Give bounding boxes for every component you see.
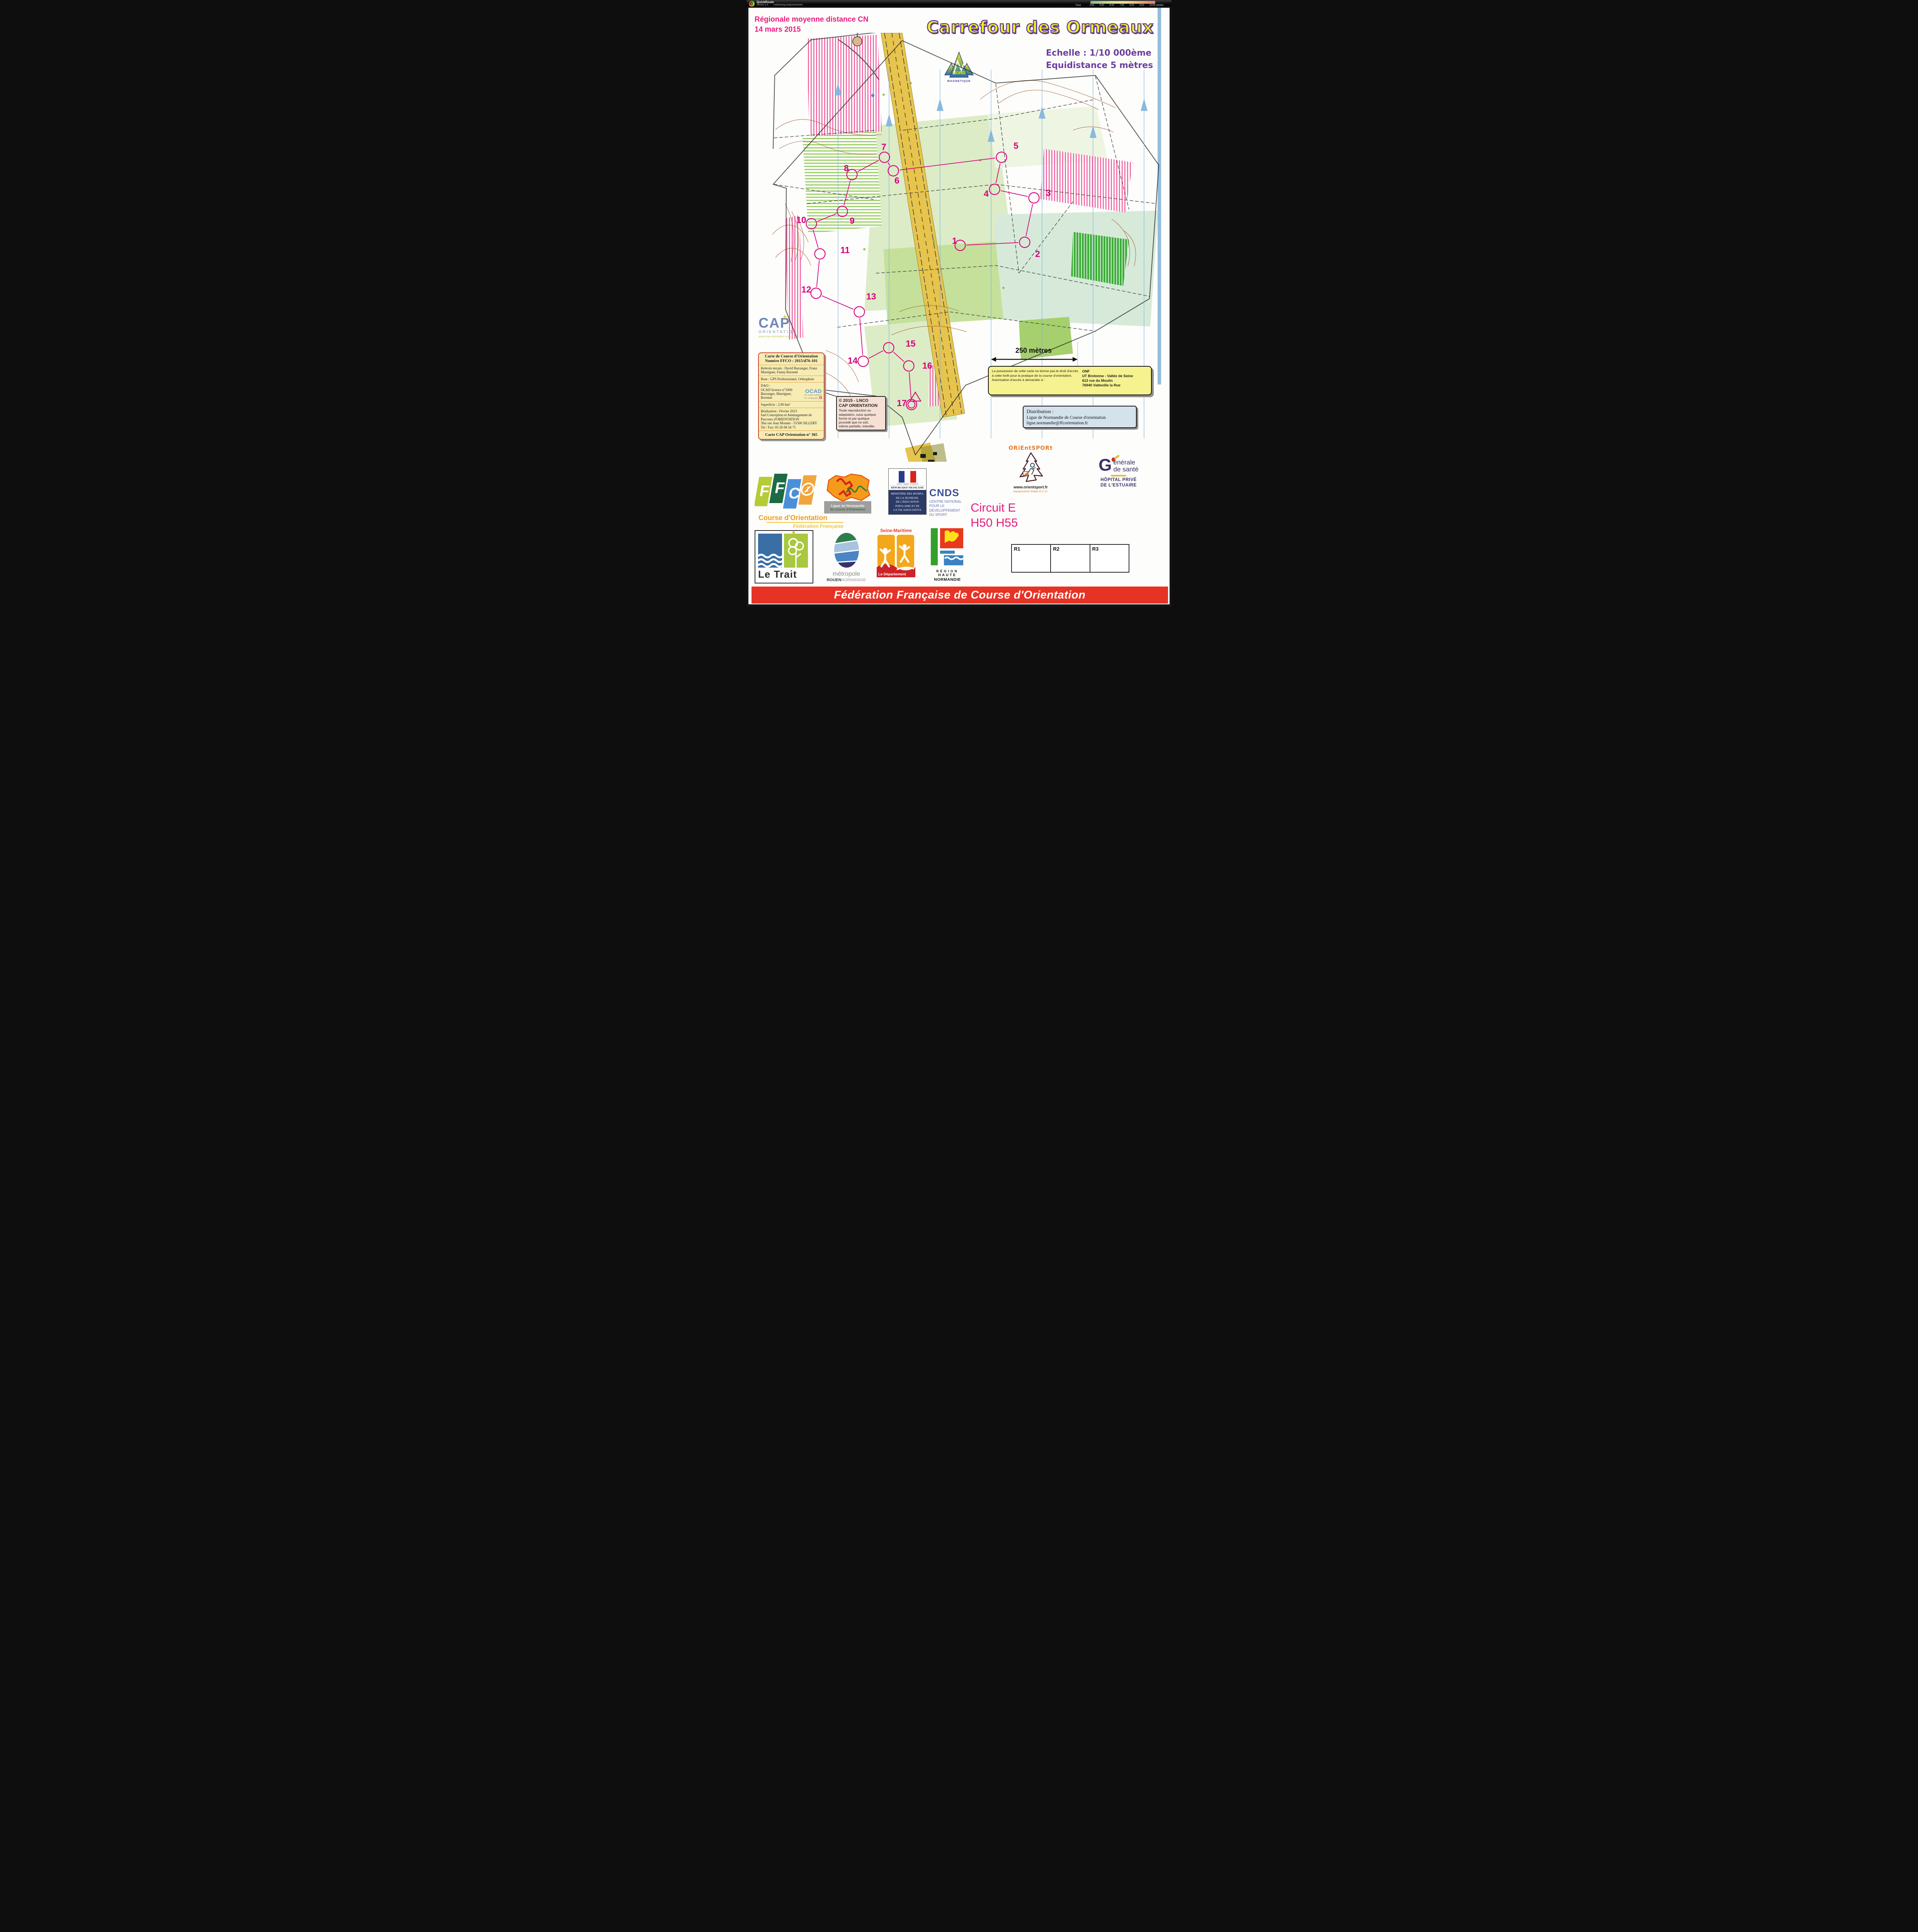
control-number-17: 17 xyxy=(897,398,907,408)
metropole-oval-icon xyxy=(834,532,859,568)
circuit-label: Circuit E H50 H55 xyxy=(971,500,1018,531)
control-number-8: 8 xyxy=(844,163,849,173)
control-number-10: 10 xyxy=(796,215,806,225)
info-carte-num: Carte CAP Orientation n° 365 xyxy=(759,430,824,439)
ligue-band: Ligue de Normandie de Course d'Orientati… xyxy=(824,501,871,514)
cap-url: www.cap-orientation.com xyxy=(758,335,809,338)
course-leg-12-13 xyxy=(822,296,854,309)
orientsport-logo: ORiEntSPORt www.orientsport.fr équipemen… xyxy=(1007,445,1055,493)
region-haute-normandie-logo: RÉGION HAUTE NORMANDIE xyxy=(930,527,965,582)
control-number-11: 11 xyxy=(840,245,850,255)
control-number-3: 3 xyxy=(1046,188,1051,198)
event-name: Régionale moyenne distance CN xyxy=(755,15,869,25)
control-number-15: 15 xyxy=(906,338,916,349)
pace-unit: min/km xyxy=(1156,4,1163,7)
control-circle-14 xyxy=(858,356,869,367)
app-version: Version 2.4 xyxy=(757,4,768,6)
ministere-logo: Liberté • Égalité • Fraternité RÉPUBLIQU… xyxy=(888,468,927,515)
control-number-14: 14 xyxy=(848,355,858,366)
info-realisation: Réalisation : Février 2015 Sarl Concepti… xyxy=(759,408,824,430)
water-panel-icon xyxy=(758,534,782,568)
control-number-5: 5 xyxy=(1013,141,1019,151)
distribution-box: Distribution : Ligue de Normandie de Cou… xyxy=(1023,406,1137,428)
pace-tick: 8:00 xyxy=(1129,4,1134,7)
quickroute-toolbar: Q QuickRoute Version 2.4 matstroeng.se/q… xyxy=(746,0,1172,8)
pace-tick: 9:00 xyxy=(1139,4,1144,7)
pace-gradient-bar xyxy=(1090,1,1155,4)
pace-tick: 7:00 xyxy=(1119,4,1124,7)
app-url: matstroeng.se/quickroute/en xyxy=(774,4,803,6)
letrait-logo: Le Trait xyxy=(755,530,813,583)
info-releves: Relevés terrain : David Barranger, Franz… xyxy=(759,365,824,376)
tree-panel-icon xyxy=(784,534,808,568)
relay-cell-r3: R3 xyxy=(1090,545,1129,572)
pace-tick: 10:00 xyxy=(1149,4,1155,7)
onf-address: ONF UT Brotonne - Vallée de Seine 613 ru… xyxy=(1082,369,1148,392)
quickroute-logo-icon: Q xyxy=(749,1,755,7)
orange-dot-icon xyxy=(792,531,795,534)
access-text: La possession de cette carte ne donne pa… xyxy=(992,369,1079,392)
clearing-circle xyxy=(853,37,862,46)
yellow-dash-icon xyxy=(1111,475,1126,476)
control-number-12: 12 xyxy=(801,284,811,294)
ffco-tiles-icon: F F C xyxy=(755,472,818,511)
control-number-13: 13 xyxy=(866,291,876,301)
control-circle-11 xyxy=(815,249,825,259)
info-dao: DAO : OCAD licence n°1000 Barranger, Mar… xyxy=(759,382,824,401)
normandy-map-icon xyxy=(824,473,871,503)
app-name: QuickRoute xyxy=(757,0,774,4)
footer-banner: Fédération Française de Course d'Orienta… xyxy=(752,587,1168,604)
info-superficie: Superficie : 2,90 km² xyxy=(759,401,824,408)
circuit-categories: H50 H55 xyxy=(971,515,1018,531)
relay-table: R1 R2 R3 xyxy=(1011,544,1129,573)
control-circle-3 xyxy=(1029,193,1039,203)
ligue-normandie-logo: Ligue de Normandie de Course d'Orientati… xyxy=(824,473,871,524)
orientsport-tree-icon xyxy=(1015,451,1047,483)
access-box: La possession de cette carte ne donne pa… xyxy=(988,366,1152,395)
copyright-box: © 2015 - LNCO CAP ORIENTATION Toute repr… xyxy=(836,396,886,430)
cap-word: CAP✦ xyxy=(758,317,809,329)
control-number-1: 1 xyxy=(952,236,957,246)
quickroute-window: Q QuickRoute Version 2.4 matstroeng.se/q… xyxy=(746,0,1172,607)
cap-orientation-logo: CAP✦ ORIENTATION www.cap-orientation.com xyxy=(758,317,809,338)
region-icon xyxy=(930,527,964,566)
generale-de-sante-logo: G énérale de santé HÔPITAL PRIVÉ DE L'ES… xyxy=(1090,457,1148,488)
federation-title: Fédération Française de Course d'Orienta… xyxy=(834,589,1086,602)
control-number-9: 9 xyxy=(850,216,855,226)
seine-maritime-logo: Seine-Maritime Le Département xyxy=(875,529,917,577)
pace-legend: Pace 4:005:006:007:008:009:0010:00 min/k… xyxy=(1076,0,1168,7)
star-icon: ✦ xyxy=(782,315,788,320)
control-number-7: 7 xyxy=(881,142,886,152)
pace-tick: 6:00 xyxy=(1110,4,1114,7)
event-info: Régionale moyenne distance CN 14 mars 20… xyxy=(755,15,869,34)
metropole-logo: métropole ROUENNORMANDIE xyxy=(820,532,872,582)
cap-sub: ORIENTATION xyxy=(758,330,809,334)
control-circle-12 xyxy=(811,288,821,299)
control-number-16: 16 xyxy=(922,361,932,371)
ocad-logo: OCAD the smart software for cartography xyxy=(804,388,822,400)
map-info-box: Carte de Course d'OrientationNuméro FFCO… xyxy=(758,352,825,440)
seine-maritime-icon xyxy=(877,534,915,577)
relay-cell-r1: R1 xyxy=(1012,545,1051,572)
pond xyxy=(871,94,874,97)
pace-ticks: 4:005:006:007:008:009:0010:00 xyxy=(1090,4,1155,7)
control-number-6: 6 xyxy=(894,175,899,185)
course-leg-13-14 xyxy=(860,318,862,355)
control-number-2: 2 xyxy=(1035,249,1040,259)
info-title: Carte de Course d'OrientationNuméro FFCO… xyxy=(759,353,824,365)
pace-tick: 4:00 xyxy=(1090,4,1094,7)
pace-tick: 5:00 xyxy=(1100,4,1104,7)
g-icon: G xyxy=(1098,457,1112,474)
course-leg-11-12 xyxy=(817,260,820,287)
relay-cell-r2: R2 xyxy=(1051,545,1090,572)
info-base: Base : GPS Professionnel, Orthophoto xyxy=(759,376,824,382)
map-sheet: Régionale moyenne distance CN 14 mars 20… xyxy=(746,8,1172,607)
control-circle-13 xyxy=(854,307,865,317)
pace-label: Pace xyxy=(1076,4,1090,7)
circuit-name: Circuit E xyxy=(971,500,1018,515)
swiss-flag-icon xyxy=(820,396,822,399)
french-flag-icon xyxy=(899,471,916,483)
control-number-4: 4 xyxy=(984,189,989,199)
ministere-panel: MINISTÈRE DES SPORTS, DE LA JEUNESSE, DE… xyxy=(889,490,926,514)
scale-bar-label: 250 mètres xyxy=(1015,347,1052,354)
